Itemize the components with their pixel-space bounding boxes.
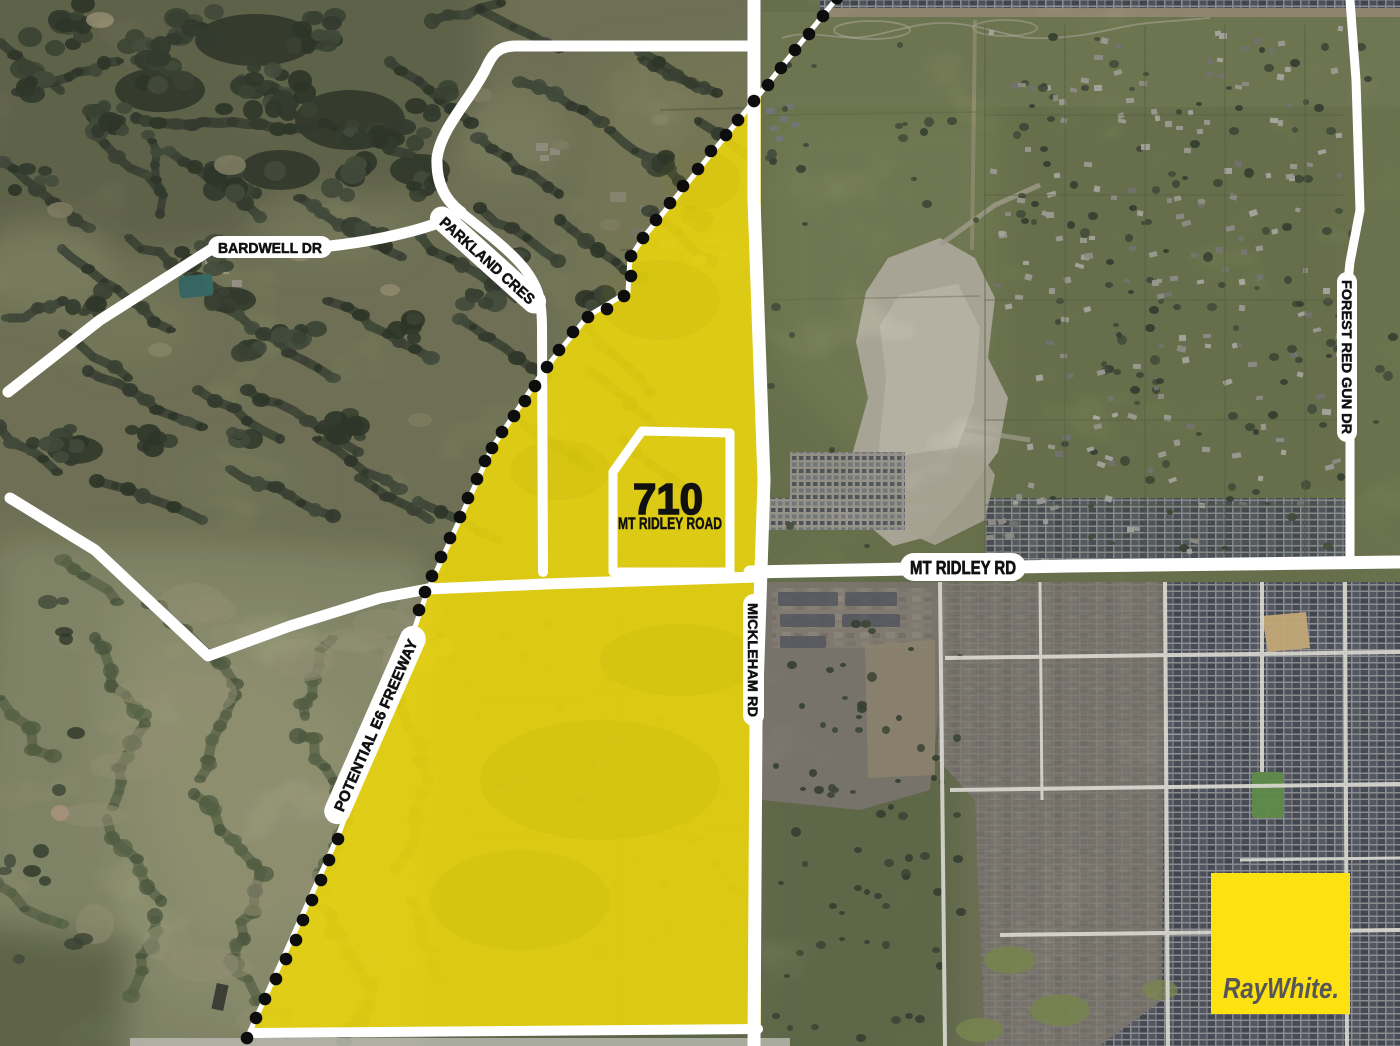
svg-text:MICKLEHAM RD: MICKLEHAM RD	[745, 603, 761, 717]
svg-text:MT RIDLEY ROAD: MT RIDLEY ROAD	[618, 514, 722, 533]
svg-text:RayWhite.: RayWhite.	[1223, 973, 1339, 1005]
svg-text:BARDWELL DR: BARDWELL DR	[218, 240, 322, 257]
svg-text:MT RIDLEY RD: MT RIDLEY RD	[910, 558, 1016, 578]
svg-text:FOREST RED GUN DR: FOREST RED GUN DR	[1339, 280, 1355, 434]
